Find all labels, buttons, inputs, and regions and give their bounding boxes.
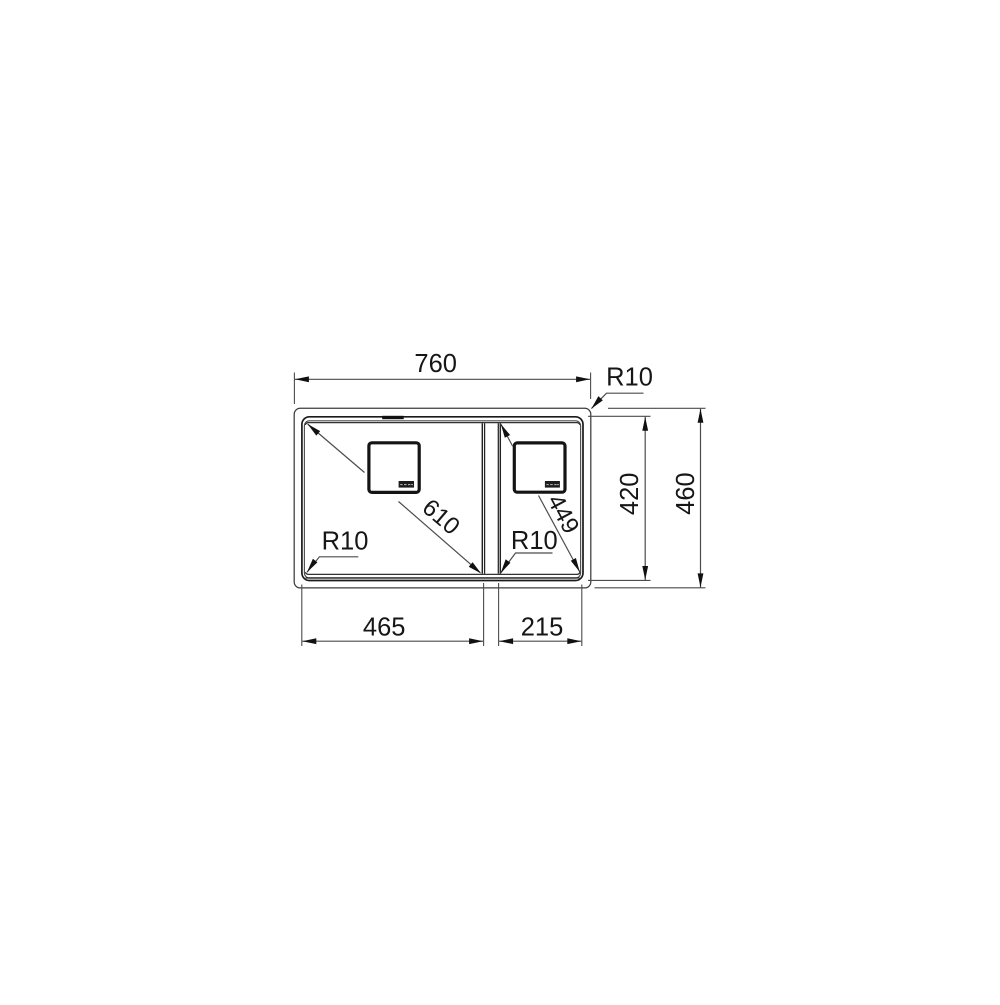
svg-text:460: 460 xyxy=(672,472,700,515)
svg-text:R10: R10 xyxy=(322,528,369,556)
svg-text:R10: R10 xyxy=(511,527,558,555)
svg-text:465: 465 xyxy=(363,613,406,641)
svg-text:420: 420 xyxy=(616,473,644,516)
svg-text:R10: R10 xyxy=(606,364,653,392)
svg-text:760: 760 xyxy=(414,350,457,378)
svg-text:215: 215 xyxy=(521,613,564,641)
